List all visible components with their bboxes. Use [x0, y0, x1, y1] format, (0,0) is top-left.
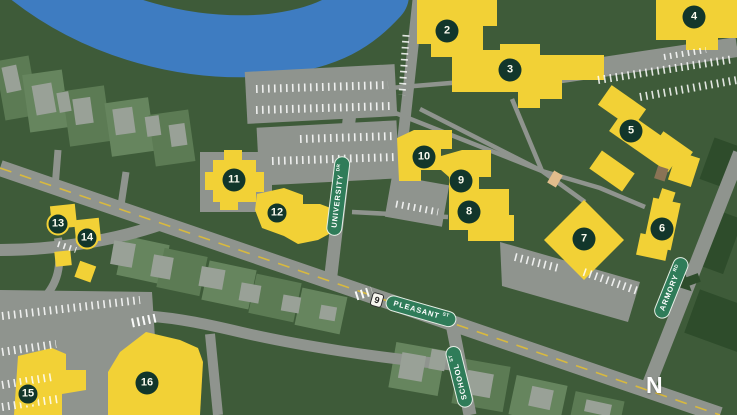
street-name: UNIVERSITY — [329, 174, 345, 229]
building-marker-4[interactable]: 4 — [683, 6, 706, 29]
building-marker-15[interactable]: 15 — [17, 383, 40, 406]
building-marker-8[interactable]: 8 — [458, 201, 481, 224]
building-shape-13a — [54, 250, 71, 267]
parking-lot-north-a — [245, 64, 398, 124]
street-suffix: ST — [442, 312, 450, 319]
building-marker-5[interactable]: 5 — [620, 120, 643, 143]
campus-map[interactable]: 2345678910111213141516 UNIVERSITYDRPLEAS… — [0, 0, 737, 415]
building-marker-13[interactable]: 13 — [47, 213, 70, 236]
building-marker-10[interactable]: 10 — [413, 146, 436, 169]
street-suffix: DR — [336, 164, 342, 172]
building-marker-14[interactable]: 14 — [76, 227, 99, 250]
street-suffix: RD — [673, 264, 680, 273]
building-marker-9[interactable]: 9 — [450, 170, 473, 193]
street-suffix: ST — [449, 354, 455, 362]
building-marker-16[interactable]: 16 — [136, 372, 159, 395]
building-marker-11[interactable]: 11 — [223, 169, 246, 192]
building-marker-3[interactable]: 3 — [499, 59, 522, 82]
building-marker-7[interactable]: 7 — [573, 228, 596, 251]
building-marker-6[interactable]: 6 — [651, 218, 674, 241]
parking-lot-north-b — [257, 120, 400, 185]
building-marker-2[interactable]: 2 — [436, 20, 459, 43]
map-base-layer — [0, 0, 737, 415]
building-marker-12[interactable]: 12 — [266, 202, 289, 225]
